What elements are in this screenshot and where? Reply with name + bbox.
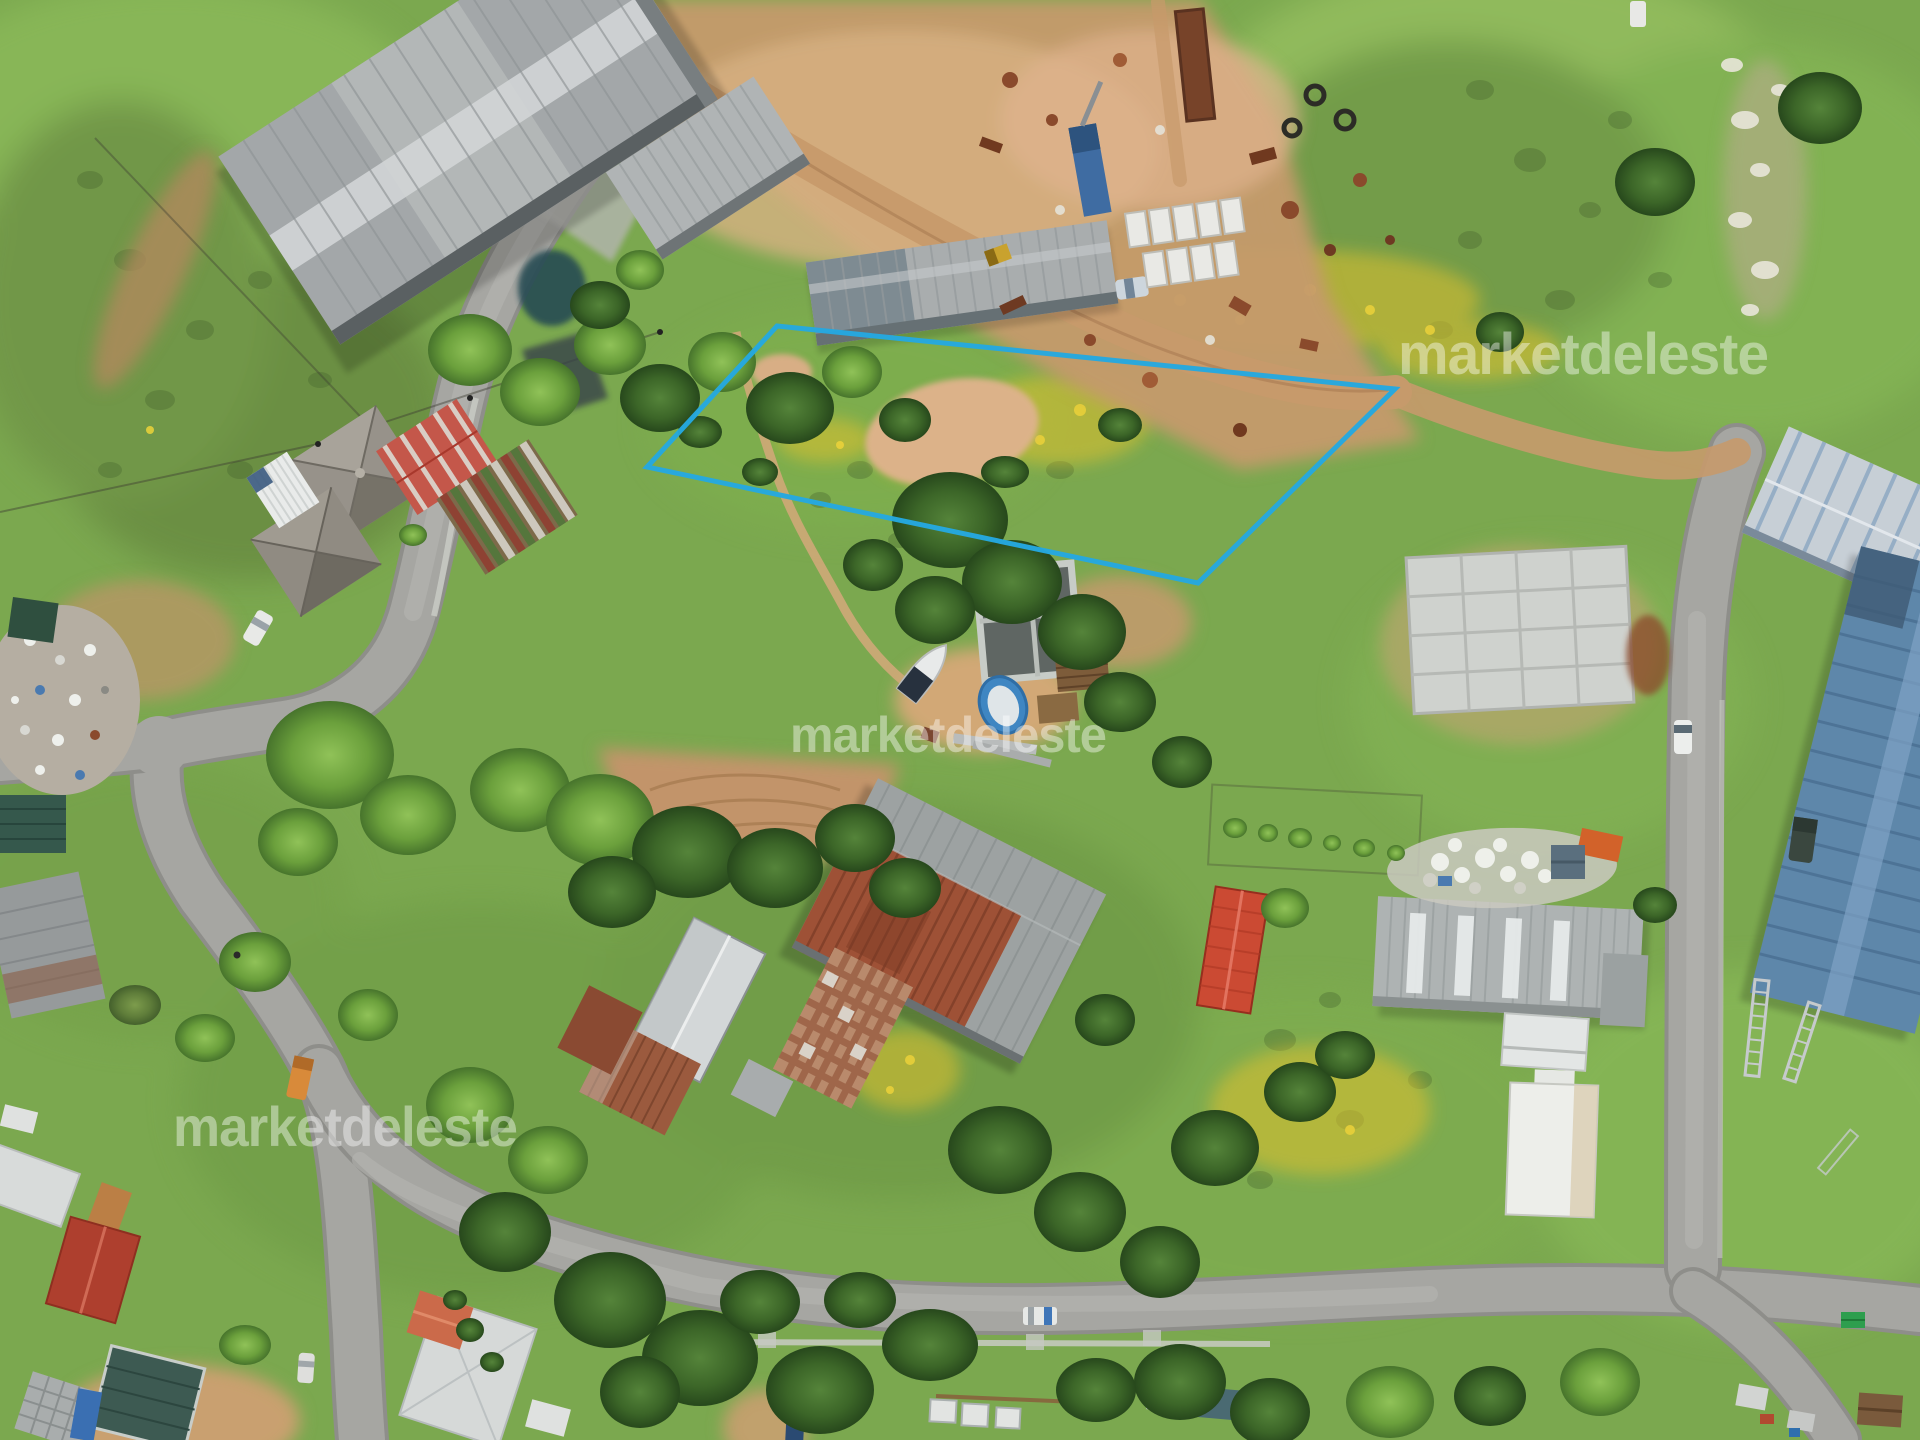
long-white-building bbox=[1506, 1069, 1599, 1218]
watermark-center: marketdeleste bbox=[790, 707, 1106, 763]
green-dumpster bbox=[1841, 1312, 1865, 1328]
white-car-2 bbox=[297, 1352, 315, 1383]
white-house bbox=[1501, 1013, 1588, 1071]
concrete-slab bbox=[1406, 546, 1634, 713]
gray-warehouse bbox=[1372, 896, 1651, 1030]
motorcycle-dot bbox=[234, 952, 241, 959]
white-van bbox=[1023, 1307, 1057, 1325]
teal-shed bbox=[0, 795, 66, 853]
watermark-bottom-left: marketdeleste bbox=[173, 1095, 517, 1158]
small-hut bbox=[1551, 845, 1585, 879]
watermark-top-right: marketdeleste bbox=[1398, 322, 1768, 387]
rust-pile bbox=[1626, 615, 1670, 695]
aerial-photo: marketdeleste marketdeleste marketdelest… bbox=[0, 0, 1920, 1440]
white-car-3 bbox=[1674, 720, 1692, 754]
